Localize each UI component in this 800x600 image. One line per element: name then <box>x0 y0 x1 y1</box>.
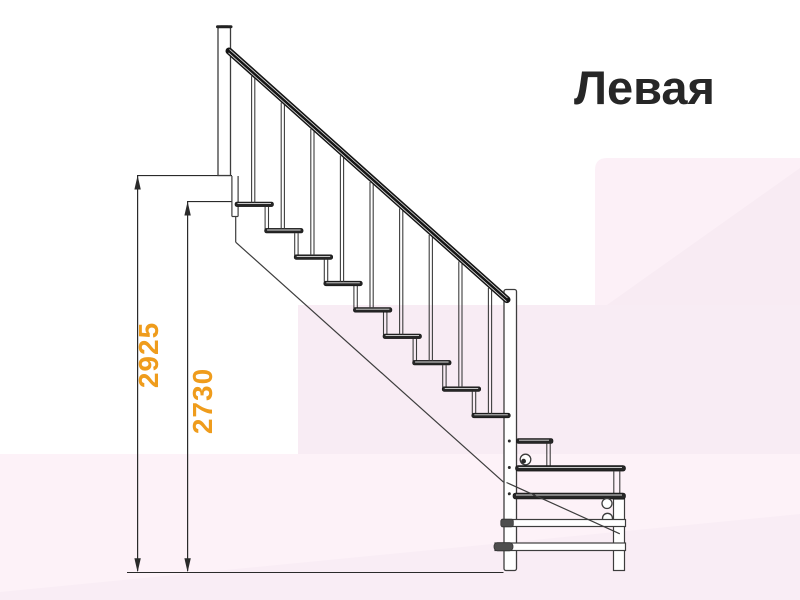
handrail <box>229 49 508 301</box>
staircase-drawing-page: 2925 2730 Левая <box>0 0 800 600</box>
dimension-label-total-height: 2925 <box>133 322 165 388</box>
drawing-title: Левая <box>574 60 715 115</box>
dimension-label-to-first-tread: 2730 <box>187 368 219 434</box>
bottom-newel-post <box>504 290 517 571</box>
